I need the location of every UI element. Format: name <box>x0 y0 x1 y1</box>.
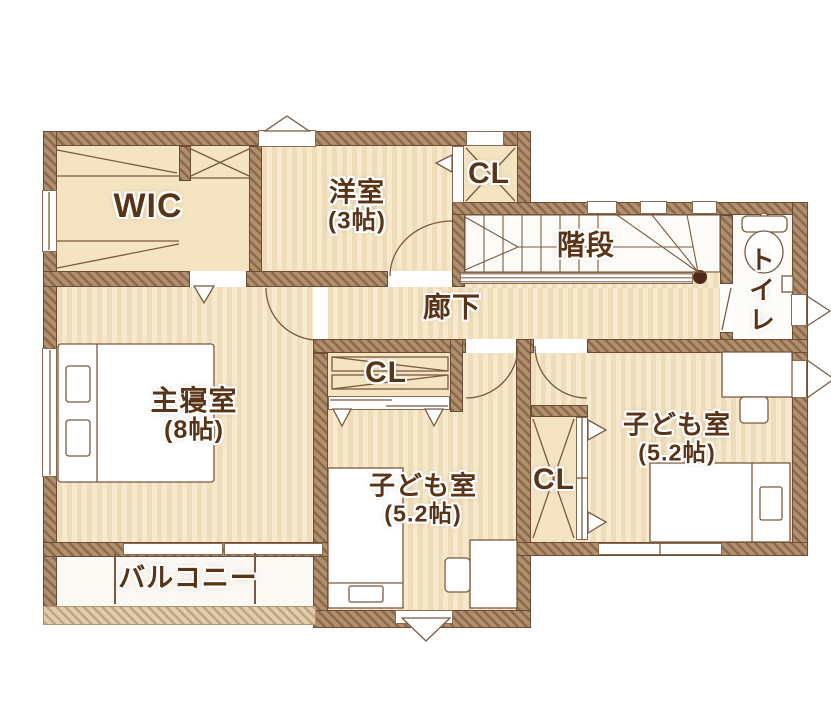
room-label-kids-center: 子ども室(5.2帖) <box>369 471 477 526</box>
floorplan-linework <box>0 0 831 720</box>
chair-icon <box>445 558 470 592</box>
room-label-stairs: 階段 <box>557 229 615 260</box>
floor-plan: WIC 洋室(3帖) CL 階段 廊下 トイレ 主寝室(8帖) CL 子ども室(… <box>0 0 831 720</box>
room-label-western: 洋室(3帖) <box>328 177 386 234</box>
room-label-closet-right: CL <box>533 463 575 497</box>
room-label-closet-top: CL <box>468 157 510 191</box>
pillow-icon <box>760 487 782 520</box>
room-label-balcony: バルコニー <box>118 563 257 593</box>
room-label-closet-mid: CL <box>365 356 407 390</box>
chair-icon <box>740 397 768 423</box>
bed-icon <box>650 463 790 542</box>
room-label-toilet: トイレ <box>745 246 774 336</box>
room-label-kids-right: 子ども室(5.2帖) <box>623 410 731 465</box>
pillow-icon <box>349 586 383 602</box>
desk-icon <box>470 540 517 608</box>
room-label-wic: WIC <box>113 187 182 225</box>
room-label-master: 主寝室(8帖) <box>150 385 237 445</box>
room-label-hallway: 廊下 <box>423 291 481 322</box>
desk-icon <box>722 352 792 397</box>
